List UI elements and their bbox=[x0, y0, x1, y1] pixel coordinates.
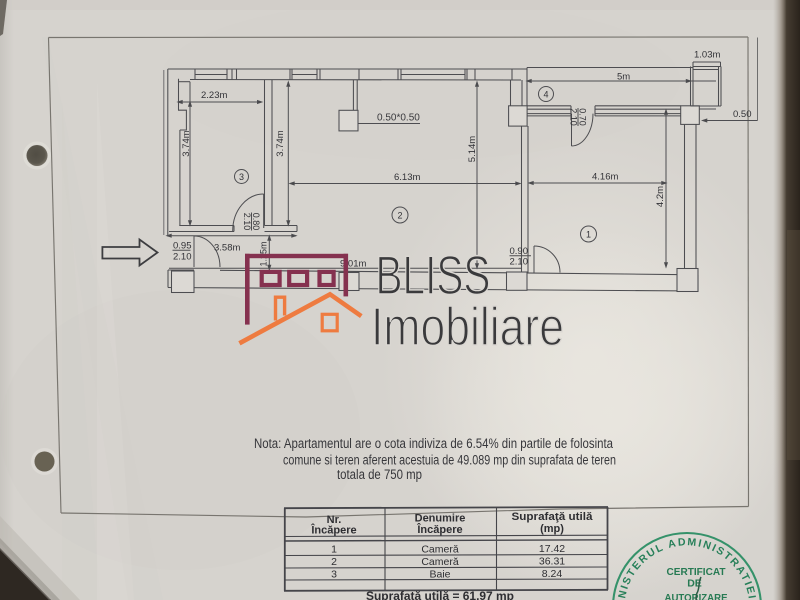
svg-text:1: 1 bbox=[331, 544, 337, 556]
svg-text:2.23m: 2.23m bbox=[201, 90, 227, 101]
svg-text:8.24: 8.24 bbox=[542, 568, 563, 580]
svg-text:Cameră: Cameră bbox=[421, 544, 459, 556]
svg-text:2.10: 2.10 bbox=[569, 108, 579, 126]
svg-text:2: 2 bbox=[397, 211, 402, 221]
svg-text:0.50*0.50: 0.50*0.50 bbox=[377, 113, 420, 124]
svg-text:Cameră: Cameră bbox=[421, 556, 459, 568]
svg-text:totala de 750 mp: totala de 750 mp bbox=[337, 467, 422, 482]
svg-text:3.74m: 3.74m bbox=[275, 130, 286, 156]
svg-text:3: 3 bbox=[331, 569, 337, 581]
svg-text:Nota: Apartamentul are o cota: Nota: Apartamentul are o cota indiviza d… bbox=[254, 436, 613, 451]
svg-text:36.31: 36.31 bbox=[539, 556, 565, 568]
svg-text:4.2m: 4.2m bbox=[655, 186, 666, 207]
svg-text:5.14m: 5.14m bbox=[467, 136, 478, 162]
svg-text:5m: 5m bbox=[617, 72, 630, 83]
svg-text:Suprafaţă utilă = 61,97 mp: Suprafaţă utilă = 61,97 mp bbox=[366, 591, 514, 600]
svg-text:3.58m: 3.58m bbox=[214, 243, 240, 254]
svg-text:Baie: Baie bbox=[429, 569, 450, 581]
svg-text:4: 4 bbox=[543, 90, 548, 100]
svg-text:2.10: 2.10 bbox=[510, 257, 529, 268]
svg-text:4.16m: 4.16m bbox=[592, 172, 618, 183]
svg-text:Imobiliare: Imobiliare bbox=[371, 297, 564, 357]
svg-text:17.42: 17.42 bbox=[539, 543, 565, 555]
svg-text:0.95: 0.95 bbox=[173, 241, 192, 252]
svg-text:Încăpere: Încăpere bbox=[416, 523, 462, 536]
svg-text:2.10: 2.10 bbox=[173, 252, 192, 263]
svg-text:6.13m: 6.13m bbox=[394, 172, 420, 183]
svg-text:1.03m: 1.03m bbox=[694, 50, 720, 61]
svg-text:Încăpere: Încăpere bbox=[310, 524, 356, 537]
svg-text:Suprafaţă utilă: Suprafaţă utilă bbox=[512, 511, 594, 523]
svg-text:3.74m: 3.74m bbox=[181, 130, 192, 156]
svg-text:CERTIFICAT: CERTIFICAT bbox=[667, 566, 727, 578]
svg-text:comune si teren aferent acestu: comune si teren aferent acestuia de 49.0… bbox=[283, 453, 616, 468]
svg-text:2.10: 2.10 bbox=[242, 213, 252, 231]
svg-text:Denumire: Denumire bbox=[415, 513, 466, 525]
svg-text:1: 1 bbox=[586, 230, 591, 240]
svg-text:0.90: 0.90 bbox=[510, 246, 529, 257]
svg-text:0.50: 0.50 bbox=[733, 109, 752, 120]
svg-text:(mp): (mp) bbox=[540, 523, 564, 535]
svg-text:2: 2 bbox=[331, 556, 337, 568]
svg-text:3: 3 bbox=[239, 172, 244, 182]
